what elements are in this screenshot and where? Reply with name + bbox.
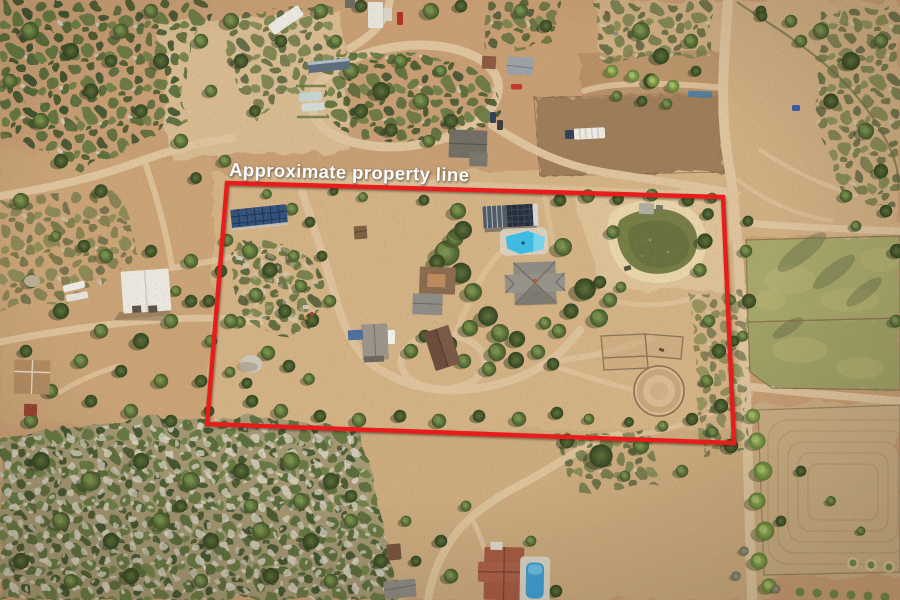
aerial-photo: Approximate property line xyxy=(0,0,900,600)
photo-texture xyxy=(0,0,900,600)
